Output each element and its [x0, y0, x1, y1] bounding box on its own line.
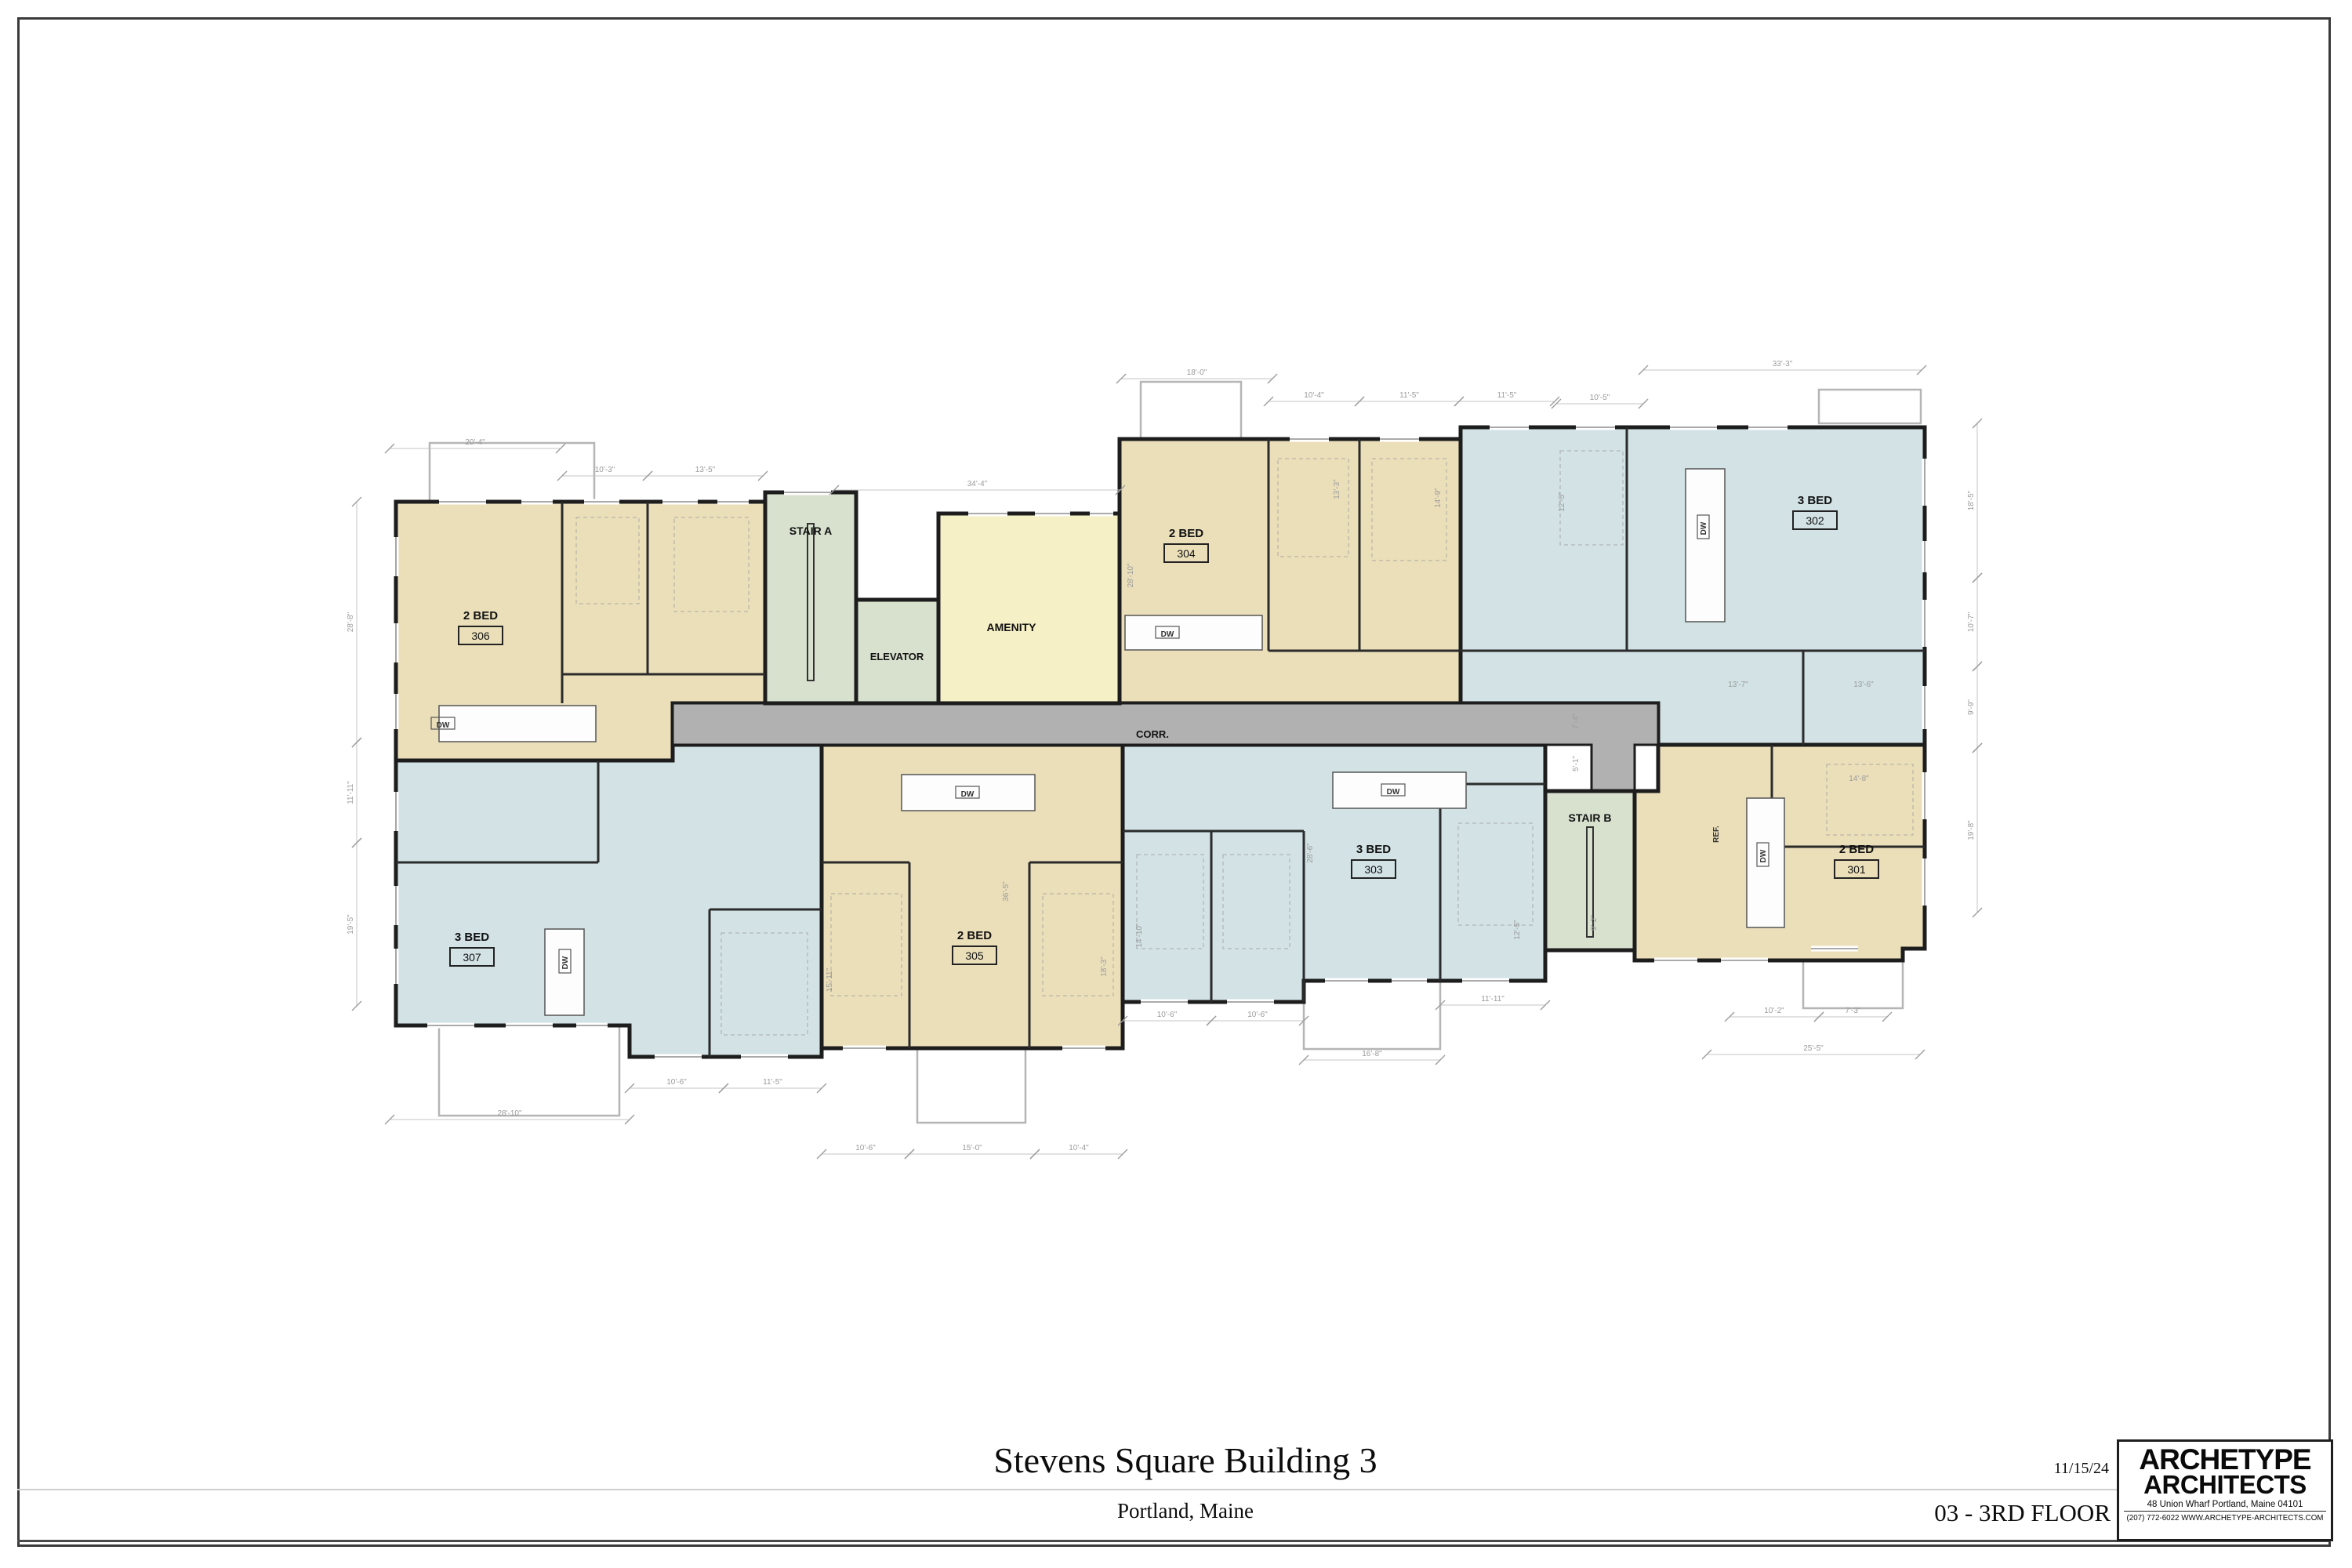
balcony	[430, 443, 594, 502]
dim-label: 10'-6"	[1247, 1011, 1268, 1019]
equipment-label: DW	[961, 790, 975, 799]
area-label: AMENITY	[987, 621, 1037, 633]
dim-label: 34'-4"	[967, 480, 988, 488]
dim-label: 13'-6"	[1853, 681, 1874, 689]
balcony	[1304, 981, 1440, 1049]
amenity	[938, 514, 1120, 703]
area-label: ELEVATOR	[870, 651, 924, 662]
balcony	[917, 1048, 1025, 1123]
dim-label: 15'-0"	[962, 1144, 982, 1152]
drawing-sheet: 20'-4"10'-3"13'-5"34'-4"18'-0"10'-4"11'-…	[0, 0, 2352, 1568]
unit-number: 306	[471, 630, 490, 642]
firm-address: 48 Union Wharf Portland, Maine 04101	[2124, 1500, 2326, 1512]
unit-type-label: 3 BED	[1356, 843, 1391, 856]
unit-number: 307	[463, 951, 481, 964]
footer-divider-light	[17, 1489, 2117, 1490]
dim-label: 10'-7"	[1967, 612, 1976, 632]
dim-label: 11'-5"	[1497, 391, 1517, 400]
balcony	[1819, 390, 1921, 423]
dim-label: 13'-5"	[695, 466, 716, 474]
dim-label: 14'-10"	[1135, 923, 1144, 947]
unit-307	[396, 745, 822, 1057]
dim-label: 7'-3"	[1846, 1007, 1861, 1015]
dim-label: 28'-6"	[1306, 843, 1315, 863]
floor-plan: 20'-4"10'-3"13'-5"34'-4"18'-0"10'-4"11'-…	[0, 0, 2352, 1568]
footer-divider-heavy	[17, 1540, 2331, 1542]
unit-type-label: 2 BED	[1839, 843, 1874, 856]
dim-label: 14'-8"	[1849, 775, 1869, 783]
balcony	[1141, 382, 1241, 439]
kitchen-island	[439, 706, 596, 742]
dim-label: 36'-5"	[1002, 881, 1011, 902]
dim-label: 11'-11"	[347, 781, 355, 804]
dim-label: 10'-6"	[666, 1078, 687, 1087]
equipment-label: REF.	[1712, 826, 1721, 843]
dim-label: 5'-1"	[1572, 756, 1581, 771]
dim-label: 10'-4"	[1304, 391, 1324, 400]
dim-label: 14'-9"	[1434, 488, 1443, 508]
dim-label: 9'-2"	[1590, 915, 1599, 931]
equipment-label: DW	[1759, 849, 1768, 862]
area-label: STAIR A	[789, 524, 832, 537]
dim-label: 19'-8"	[1967, 820, 1976, 840]
equipment-label: DW	[437, 721, 450, 730]
dim-label: 13'-7"	[1728, 681, 1748, 689]
unit-number: 302	[1806, 514, 1824, 527]
dim-label: 11'-5"	[763, 1078, 782, 1087]
balcony	[439, 1025, 619, 1116]
dim-label: 10'-4"	[1069, 1144, 1089, 1152]
area-label: CORR.	[1136, 728, 1169, 740]
dim-label: 18'-5"	[1967, 490, 1976, 510]
issue-date: 11/15/24	[1944, 1460, 2109, 1478]
equipment-label: DW	[1161, 630, 1174, 639]
unit-type-label: 2 BED	[957, 929, 992, 942]
dim-label: 9'-9"	[1967, 699, 1976, 715]
unit-type-label: 2 BED	[1169, 527, 1203, 540]
kitchen-island	[1686, 469, 1725, 622]
firm-name-line2: ARCHITECTS	[2119, 1473, 2331, 1497]
dim-label: 10'-6"	[1157, 1011, 1178, 1019]
dim-label: 28'-10"	[497, 1109, 521, 1118]
dim-label: 25'-5"	[1803, 1044, 1824, 1053]
architect-title-block: ARCHETYPE ARCHITECTS 48 Union Wharf Port…	[2117, 1439, 2333, 1541]
dim-label: 10'-5"	[1590, 394, 1610, 402]
dim-label: 28'-8"	[347, 612, 355, 632]
equipment-label: DW	[1387, 788, 1400, 797]
unit-number: 305	[965, 949, 984, 962]
unit-type-label: 3 BED	[455, 931, 489, 944]
unit-number: 303	[1364, 863, 1383, 876]
dim-label: 11'-11"	[1481, 995, 1504, 1004]
dim-label: 10'-2"	[1764, 1007, 1784, 1015]
dim-label: 19'-5"	[347, 914, 355, 935]
equipment-label: DW	[1700, 521, 1708, 535]
dim-label: 33'-3"	[1773, 360, 1793, 368]
dim-label: 15'-11"	[826, 967, 834, 992]
unit-type-label: 2 BED	[463, 609, 498, 622]
dim-label: 20'-4"	[465, 438, 485, 447]
dim-label: 18'-3"	[1100, 956, 1109, 977]
dim-label: 7'-4"	[1572, 713, 1581, 729]
dim-label: 18'-0"	[1187, 368, 1207, 377]
dim-label: 16'-8"	[1362, 1050, 1382, 1058]
area-label: STAIR B	[1569, 811, 1612, 824]
firm-contact: (207) 772-6022 WWW.ARCHETYPE-ARCHITECTS.…	[2119, 1512, 2331, 1523]
unit-304	[1120, 439, 1461, 703]
dim-label: 13'-3"	[1333, 479, 1341, 499]
sheet-name: 03 - 3RD FLOOR	[1827, 1499, 2111, 1527]
unit-number: 304	[1177, 547, 1196, 560]
unit-type-label: 3 BED	[1798, 494, 1832, 507]
dim-label: 10'-6"	[855, 1144, 876, 1152]
dim-label: 10'-3"	[595, 466, 615, 474]
kitchen-island	[545, 929, 584, 1015]
dim-label: 11'-5"	[1399, 391, 1419, 400]
dim-label: 12'-5"	[1513, 920, 1522, 940]
balcony	[1803, 960, 1903, 1008]
dim-label: 28'-10"	[1127, 563, 1135, 587]
dim-label: 12'-5"	[1558, 492, 1566, 512]
firm-name-line1: ARCHETYPE	[2119, 1446, 2331, 1473]
unit-number: 301	[1847, 863, 1866, 876]
equipment-label: DW	[561, 956, 570, 969]
kitchen-island	[1125, 615, 1262, 650]
